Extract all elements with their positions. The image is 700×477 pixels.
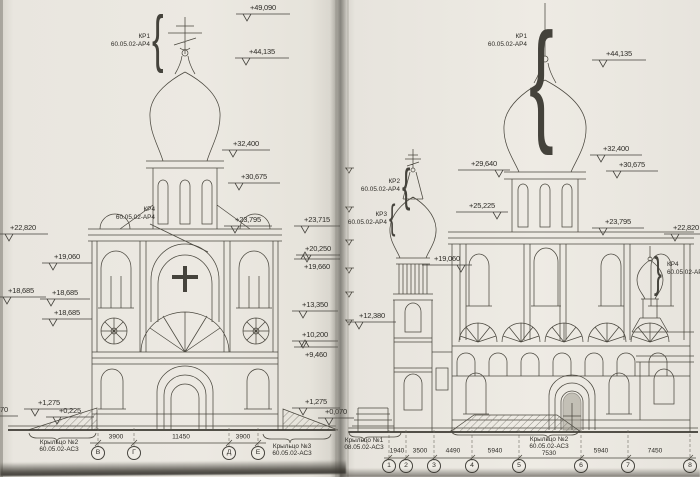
callout-brace: { [152, 14, 164, 64]
porch-label: Крыльцо №108.05.02-АС3 [344, 437, 383, 451]
elevation-mark-value: +44,135 [249, 47, 275, 56]
dimension-label: 3900 [109, 434, 124, 441]
callout-name: КР2 [308, 178, 400, 186]
callout-name: КР4 [63, 206, 155, 214]
elevation-mark-value: +18,685 [52, 288, 78, 297]
axis-bubble: 7 [621, 459, 635, 473]
axis-bubble: В [91, 446, 105, 460]
dimension-label: 5940 [594, 448, 609, 455]
annotation-layer: +49,090+44,135+32,400+30,675+23,795+23,7… [0, 0, 700, 477]
fold-shadow [330, 0, 348, 477]
elevation-mark-value: +22,820 [673, 223, 699, 232]
elevation-mark-value: +30,675 [241, 172, 267, 181]
elevation-mark-value: +32,400 [233, 139, 259, 148]
elevation-mark-value: +1,275 [305, 397, 327, 406]
porch-label: Крыльцо №260.05.02-АС3 [39, 439, 78, 453]
elevation-mark-value: +0,225 [59, 406, 81, 415]
callout-brace: { [389, 204, 395, 232]
dimension-label: 4490 [446, 448, 461, 455]
dimension-label: 3500 [413, 448, 428, 455]
axis-bubble: Д [222, 446, 236, 460]
porch-label-line: Крыльцо №2 [529, 436, 568, 443]
axis-bubble: 2 [399, 459, 413, 473]
porch-label-line: 08.05.02-АС3 [344, 444, 383, 451]
axis-bubble: Г [127, 446, 141, 460]
drawing-callout: КР460.05.02-АР4 [667, 261, 700, 276]
callout-code: 60.05.02-АР4 [667, 269, 700, 277]
porch-label-line: Крыльцо №1 [344, 437, 383, 444]
elevation-mark-value: +29,640 [471, 159, 497, 168]
axis-bubble: Е [251, 446, 265, 460]
elevation-mark-value: +12,380 [359, 311, 385, 320]
scanned-drawing: { "style": { "paper_color": "#ebe8e1", "… [0, 0, 700, 477]
callout-name: КР1 [435, 33, 527, 41]
drawing-callout: КР160.05.02-АР4 [58, 33, 150, 48]
elevation-mark-value: +18,685 [8, 286, 34, 295]
callout-code: 60.05.02-АР4 [58, 41, 150, 49]
callout-brace: { [402, 167, 410, 204]
porch-label-line: Крыльцо №3 [272, 443, 311, 450]
porch-label: Крыльцо №360.05.02-АС3 [272, 443, 311, 457]
dimension-label: 7450 [648, 448, 663, 455]
drawing-callout: КР460.05.02-АР4 [63, 206, 155, 221]
callout-name: КР4 [667, 261, 700, 269]
elevation-mark-value: +22,820 [10, 223, 36, 232]
porch-label-line: 7530 [529, 450, 568, 457]
elevation-mark-value: +18,685 [54, 308, 80, 317]
axis-bubble: 8 [683, 459, 697, 473]
elevation-mark-value: +9,460 [305, 350, 327, 359]
porch-label-line: 60.05.02-АС3 [39, 446, 78, 453]
elevation-mark-value: +25,225 [469, 201, 495, 210]
axis-bubble: 6 [574, 459, 588, 473]
callout-brace: { [529, 27, 554, 135]
dimension-label: 5940 [488, 448, 503, 455]
elevation-mark-value: +30,675 [619, 160, 645, 169]
elevation-mark-value: +13,350 [302, 300, 328, 309]
callout-name: КР1 [58, 33, 150, 41]
elevation-mark-value: +19,060 [434, 254, 460, 263]
callout-code: 60.05.02-АР4 [435, 41, 527, 49]
callout-code: 60.05.02-АР4 [63, 214, 155, 222]
dimension-label: 1940 [390, 448, 405, 455]
elevation-mark-value: +49,090 [250, 3, 276, 12]
porch-label-line: 60.05.02-АС3 [529, 443, 568, 450]
axis-bubble: 3 [427, 459, 441, 473]
elevation-mark-value: +0,070 [0, 405, 8, 414]
axis-bubble: 1 [382, 459, 396, 473]
drawing-callout: КР260.05.02-АР4 [308, 178, 400, 193]
callout-code: 60.05.02-АР4 [308, 186, 400, 194]
elevation-mark-value: +23,795 [235, 215, 261, 224]
porch-label: Крыльцо №260.05.02-АС37530 [529, 436, 568, 458]
elevation-mark-value: +19,060 [54, 252, 80, 261]
dimension-label: 3900 [236, 434, 251, 441]
elevation-mark-value: +44,135 [606, 49, 632, 58]
drawing-callout: КР160.05.02-АР4 [435, 33, 527, 48]
elevation-mark-value: +32,400 [603, 144, 629, 153]
elevation-mark-value: +1,275 [38, 398, 60, 407]
elevation-mark-value: +23,795 [605, 217, 631, 226]
porch-label-line: 60.05.02-АС3 [272, 450, 311, 457]
callout-brace: } [654, 256, 662, 290]
axis-bubble: 4 [465, 459, 479, 473]
dimension-label: 11450 [172, 434, 190, 441]
porch-label-line: Крыльцо №2 [39, 439, 78, 446]
elevation-mark-value: +19,660 [304, 262, 330, 271]
axis-bubble: 5 [512, 459, 526, 473]
